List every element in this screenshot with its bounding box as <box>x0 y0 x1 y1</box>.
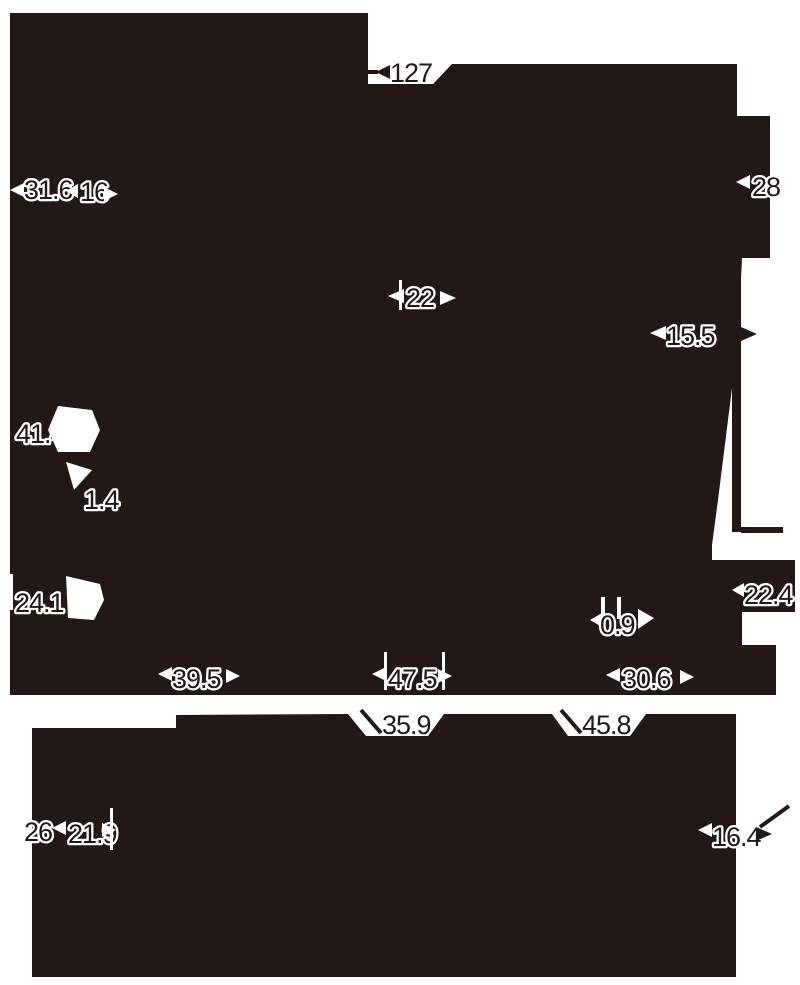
dim-31-6-label: 31.6 <box>24 175 73 205</box>
dim-127-arrowhead <box>376 65 390 79</box>
dim-16-label: 16 <box>80 177 108 207</box>
dim-24-1-label: 24.1 <box>15 588 64 618</box>
extension-line-horizontal <box>741 527 783 533</box>
dim-1-4-label: 1.4 <box>84 485 120 515</box>
side-view-silhouette <box>32 714 736 977</box>
dim-28-label: 28 <box>752 172 780 202</box>
extension-line-vertical <box>732 258 741 532</box>
dim-22-4-label: 22.4 <box>744 580 794 610</box>
dim-35-9-leader <box>361 710 381 733</box>
dim-16-4-leader <box>760 806 789 827</box>
dim-16-4-label: 16.4 <box>712 822 762 852</box>
dim-0-9-label: 0.9 <box>600 610 635 640</box>
dim-45-8-leader <box>561 710 581 733</box>
dim-35-9-label: 35.9 <box>382 710 431 740</box>
dim-22-label: 22 <box>406 283 434 313</box>
dim-21-9-label: 21.9 <box>68 819 117 849</box>
dim-16-4-arrowhead-right <box>756 827 772 841</box>
dim-127-label: 127 <box>390 58 432 88</box>
dim-24-1-extension-bar <box>10 574 13 610</box>
dim-15-5-arrowhead-right <box>741 327 757 341</box>
dim-47-5-label: 47.5 <box>388 664 437 694</box>
dim-39-5-label: 39.5 <box>172 664 221 694</box>
dimension-drawing-svg: 127 31.6 16 28 22 15.5 41.4 1.4 24.1 0.9… <box>0 0 800 985</box>
dim-45-8-label: 45.8 <box>582 710 631 740</box>
dim-26-label: 26 <box>24 817 52 847</box>
drawing-canvas: 127 31.6 16 28 22 15.5 41.4 1.4 24.1 0.9… <box>0 0 800 985</box>
dim-47-5-extension-bar-right <box>442 652 445 690</box>
dim-30-6-label: 30.6 <box>622 664 671 694</box>
top-view-silhouette <box>10 13 795 695</box>
dim-21-9-extension-bar <box>110 808 113 850</box>
dim-15-5-label: 15.5 <box>666 321 715 351</box>
dim-41-4-leader-blob <box>48 406 100 452</box>
